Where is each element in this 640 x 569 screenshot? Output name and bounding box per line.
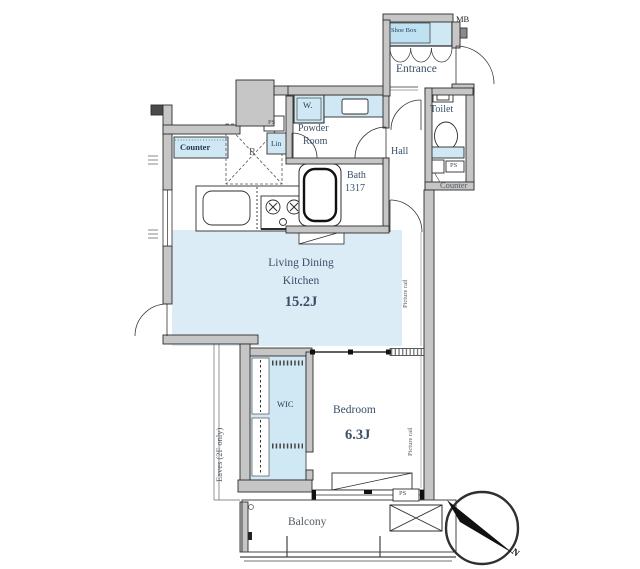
room-size-bedroom: 6.3J — [345, 428, 370, 443]
sliding-door — [310, 349, 424, 356]
ldk-floor — [172, 230, 402, 346]
room-label-powder-1: Powder — [298, 124, 329, 134]
room-label-ldk-2: Kitchen — [238, 276, 364, 288]
vanity-sink — [342, 99, 368, 114]
dimension-ticks — [148, 156, 158, 238]
exterior-door-arc — [135, 304, 167, 336]
room-size-ldk: 15.2J — [238, 295, 364, 310]
powder-door-arc — [355, 127, 386, 158]
front-door-arc — [456, 46, 494, 84]
mb-label: MB — [456, 15, 469, 24]
kitchen-sink — [203, 191, 250, 225]
kitchen-counter — [196, 186, 310, 231]
room-label-ldk-1: Living Dining — [238, 258, 364, 270]
room-label-powder-2: Room — [303, 137, 327, 147]
shoe-box-doors — [390, 48, 452, 62]
shoe-box-label: Shoe Box — [391, 28, 416, 35]
ps-bedroom-label: PS — [399, 491, 406, 498]
ps-kitchen-label: PS — [268, 120, 275, 127]
ps-toilet-label: PS — [450, 163, 457, 170]
picture-rail-label-1: Picture rail — [403, 246, 410, 308]
washer-label: W. — [303, 101, 312, 110]
room-size-bath: 1317 — [345, 184, 365, 194]
wic-label: WIC — [277, 400, 294, 409]
floor-plan: Shoe Box MB Entrance Toilet Powder Room … — [0, 0, 640, 569]
room-label-entrance: Entrance — [396, 64, 437, 76]
eaves-label: Eaves (2F only) — [215, 362, 224, 482]
picture-rail-label-2: Picture rail — [408, 394, 415, 456]
linen-label: Lin — [271, 140, 281, 148]
room-label-hall: Hall — [391, 147, 408, 157]
counter-kitchen-label: Counter — [180, 143, 210, 152]
room-label-bath: Bath — [347, 171, 366, 181]
room-label-toilet: Toilet — [430, 105, 453, 115]
room-label-balcony: Balcony — [288, 517, 326, 529]
toilet-door-arc — [391, 100, 421, 130]
compass-needle — [447, 500, 514, 554]
hall-door-arc — [390, 200, 422, 232]
counter-toilet-label: Counter — [440, 181, 467, 190]
compass — [446, 492, 518, 564]
wall-cap — [151, 105, 163, 115]
bathtub — [299, 164, 341, 226]
toilet-fixture — [433, 92, 458, 150]
room-label-bedroom: Bedroom — [333, 405, 376, 417]
balcony-items — [244, 505, 442, 541]
fridge-label: R — [249, 148, 256, 158]
